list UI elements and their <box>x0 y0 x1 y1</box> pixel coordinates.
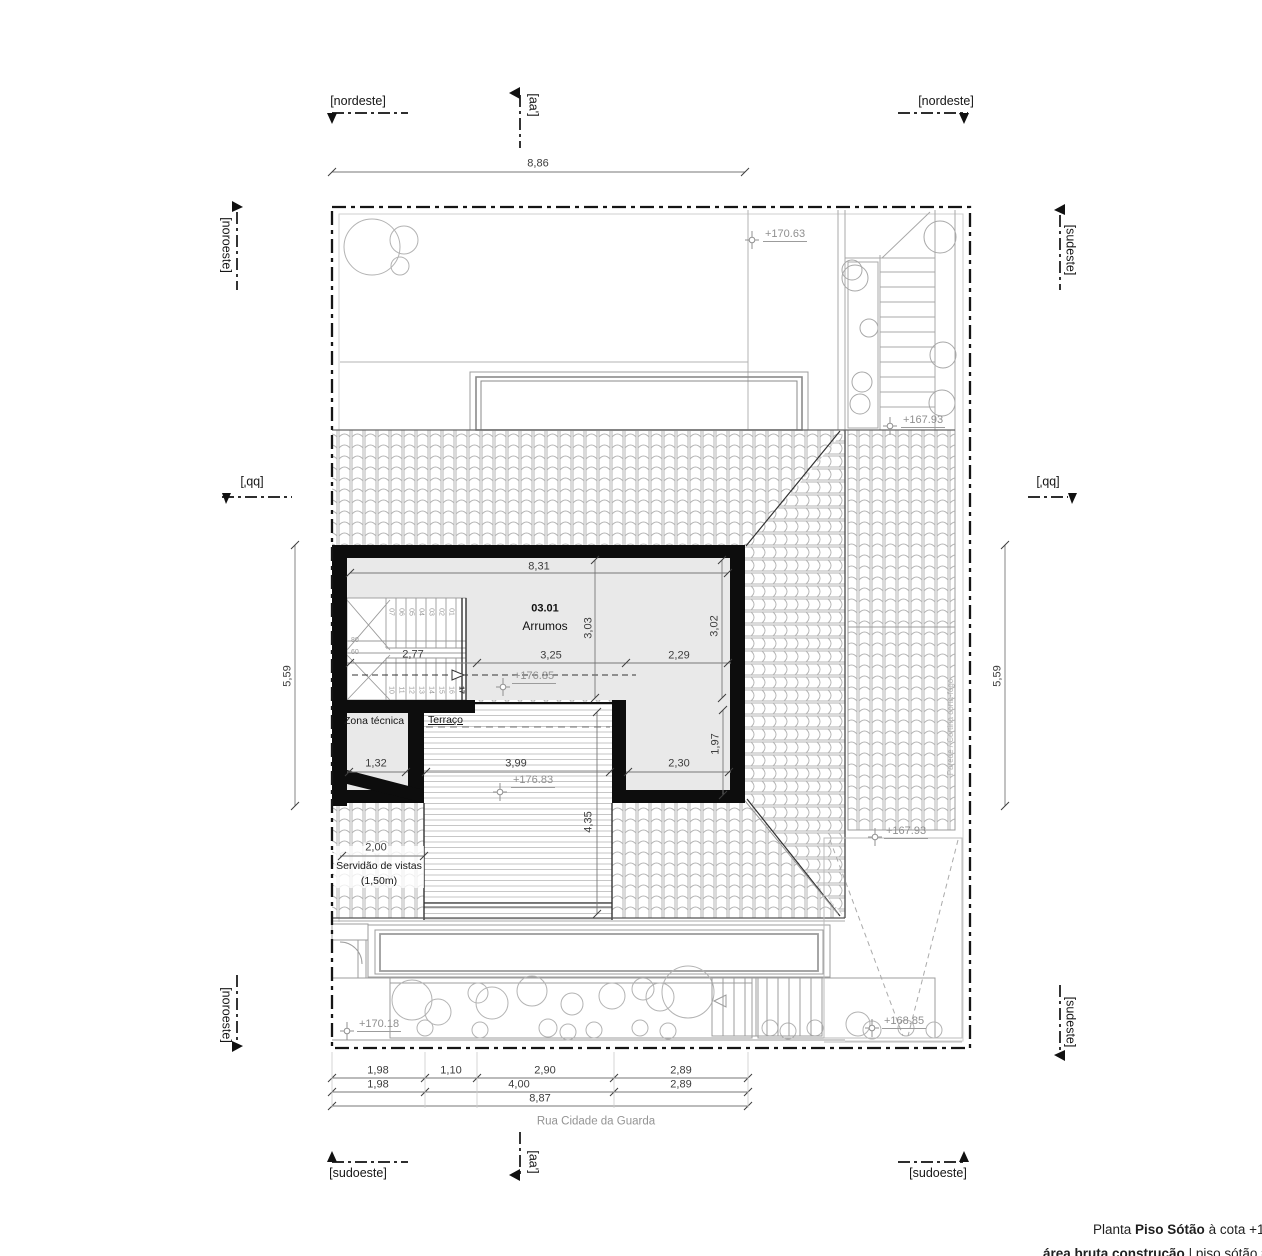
dim-right-height: 5,59 <box>993 665 1004 686</box>
dim-leg-width: 2,30 <box>668 759 689 770</box>
dim-bottom: 2,90 <box>534 1066 555 1077</box>
stair-number: 10 <box>388 686 395 694</box>
dim-bottom: 1,10 <box>440 1066 461 1077</box>
elevation-garden-top: +170.63 <box>763 229 807 242</box>
dim-bottom: 4,00 <box>508 1080 529 1091</box>
marker-sudoeste-right: [sudoeste] <box>909 1167 967 1180</box>
zona-tecnica-label: Zona técnica <box>344 716 404 727</box>
dim-bottom: 2,89 <box>670 1066 691 1077</box>
stair-number: 13 <box>418 686 425 694</box>
dim-top-width: 8,86 <box>527 159 548 170</box>
dim-terrace-width: 3,99 <box>505 759 526 770</box>
title-line-1: Planta Piso Sótão à cota +178 <box>1093 1222 1262 1237</box>
street-name: Rua Cidade da Guarda <box>537 1116 655 1128</box>
elevation-room-floor: +176.85 <box>512 671 556 684</box>
marker-noroeste-top: [noroeste] <box>220 217 233 273</box>
dim-bottom: 2,89 <box>670 1080 691 1091</box>
servidao-label-1: Servidão de vistas <box>336 861 422 872</box>
stair-number: 04 <box>418 608 425 616</box>
marker-sudeste-bottom: [sudeste] <box>1064 997 1077 1048</box>
dim-bottom-total: 8,87 <box>529 1094 550 1105</box>
dim-room-width: 8,31 <box>528 562 549 573</box>
stair-number: 11 <box>398 686 405 693</box>
dim-stair-width: 2,77 <box>402 650 423 661</box>
elevation-stair-top: +167.93 <box>901 415 945 428</box>
elevation-terrace-floor: +176.83 <box>511 775 555 788</box>
marker-sudeste-top: [sudeste] <box>1064 225 1077 276</box>
marker-section-aa-top: [aa'] <box>527 93 540 116</box>
dim-bottom: 1,98 <box>367 1080 388 1091</box>
title-suffix: à cota +178 <box>1209 1222 1262 1237</box>
stair-number: 12 <box>408 686 415 694</box>
servidao-label-2: (1,50m) <box>361 876 397 887</box>
marker-nordeste-right: [nordeste] <box>918 95 974 108</box>
plan-linework <box>0 0 1262 1256</box>
dim-servidao-width: 2,00 <box>363 843 388 854</box>
dim-room-mid-width: 3,25 <box>540 651 561 662</box>
stair-number: 01 <box>448 608 455 616</box>
stair-number: 02 <box>438 608 445 616</box>
elevation-roof-edge: +167.93 <box>884 826 928 839</box>
stair-landing-dim: 60 <box>351 649 359 656</box>
stair-number: 07 <box>388 608 395 616</box>
marker-noroeste-bottom: [noroeste] <box>220 987 233 1043</box>
title-plan-name: Piso Sótão <box>1135 1222 1205 1237</box>
stair-number: 05 <box>408 608 415 616</box>
stair-number: 03 <box>428 608 435 616</box>
title-line-2: área bruta construção | piso sótão = 03 <box>1043 1246 1262 1256</box>
room-name: Arrumos <box>522 620 567 632</box>
stair-number: 17 <box>458 686 465 694</box>
dim-left-height: 5,59 <box>283 665 294 686</box>
stair-landing-dim: 80 <box>351 637 359 644</box>
title-area-label: área bruta construção <box>1043 1246 1185 1256</box>
stair-number: 16 <box>448 686 455 694</box>
dim-room-depth-right: 3,02 <box>710 615 721 636</box>
dim-zona-width: 1,32 <box>365 759 386 770</box>
elevation-garden-bottom: +170.18 <box>357 1019 401 1032</box>
dim-leg-depth: 1,97 <box>711 733 722 754</box>
marker-sudoeste-left: [sudoeste] <box>329 1167 387 1180</box>
stair-number: 15 <box>438 686 445 694</box>
dim-room-depth-mid: 3,03 <box>584 617 595 638</box>
stair-number: 14 <box>428 686 435 694</box>
floor-plan-canvas: [nordeste] [nordeste] [noroeste] [noroes… <box>0 0 1262 1256</box>
dim-room-right-width: 2,29 <box>668 651 689 662</box>
room-number: 03.01 <box>531 604 559 615</box>
title-prefix: Planta <box>1093 1222 1131 1237</box>
parede-cortina-label: Parede / Cortina corta-fogo <box>947 679 955 776</box>
dim-bottom: 1,98 <box>367 1066 388 1077</box>
dim-terrace-depth: 4,35 <box>584 811 595 832</box>
title-area-value: | piso sótão = 03 <box>1189 1246 1262 1256</box>
marker-section-aa-bottom: [aa'] <box>527 1150 540 1173</box>
elevation-ramp-bottom: +168.85 <box>882 1016 926 1029</box>
stair-number: 06 <box>398 608 405 616</box>
marker-nordeste-left: [nordeste] <box>330 95 386 108</box>
marker-section-bb-right: [bb'] <box>1036 476 1059 489</box>
terraco-label: Terraço <box>428 715 463 726</box>
marker-section-bb-left: [bb'] <box>240 476 263 489</box>
